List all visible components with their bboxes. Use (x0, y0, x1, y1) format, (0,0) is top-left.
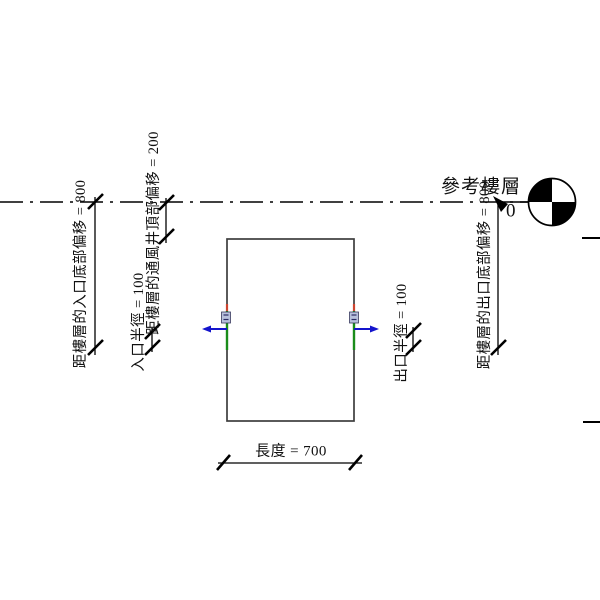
quadrant-fill-bottomright (552, 202, 576, 226)
arrow-left-icon (202, 326, 211, 333)
vent-shaft-extrusion[interactable] (227, 239, 354, 421)
dim-text-entrance-bottom-offset[interactable]: 距樓層的入口底部偏移 = 800 (74, 180, 89, 369)
dim-text-vent-top-offset[interactable]: 距樓層的通風井頂部偏移 = 200 (147, 131, 162, 334)
quadrant-fill-topleft (529, 179, 553, 203)
dim-text-exit-radius[interactable]: 出口半徑 = 100 (395, 283, 410, 382)
arrow-right-icon (370, 326, 379, 333)
exit-connector[interactable] (350, 304, 380, 350)
dim-text-exit-bottom-offset[interactable]: 距樓層的出口底部偏移 = 800 (478, 181, 493, 370)
drawing-canvas: 距樓層的入口底部偏移 = 800 距樓層的通風井頂部偏移 = 200 入口半徑 … (0, 0, 600, 600)
drawing-linework (0, 0, 600, 600)
extrusion-outline (227, 239, 354, 421)
entrance-connector[interactable] (202, 304, 231, 350)
connector-glyph (350, 312, 359, 323)
dim-entrance-bottom-offset[interactable] (88, 194, 103, 355)
dim-text-length[interactable]: 長度 = 700 (255, 445, 327, 460)
level-name-text[interactable]: 參考樓層 (441, 178, 521, 197)
level-elevation-text[interactable]: 0 (506, 202, 516, 221)
connector-glyph (222, 312, 231, 323)
dim-text-entrance-radius[interactable]: 入口半徑 = 100 (132, 272, 147, 371)
